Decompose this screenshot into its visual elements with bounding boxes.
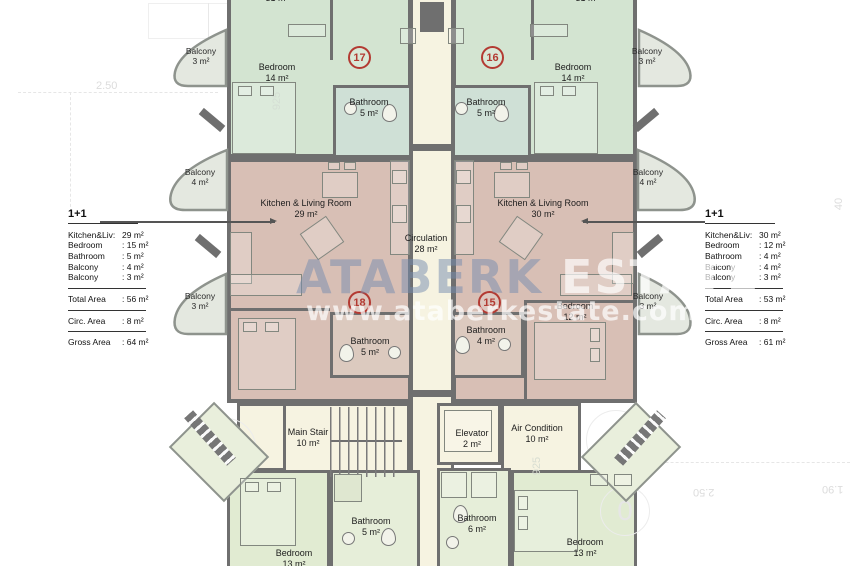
left-unit-summary: 1+1 Kitchen&Liv:29 m² Bedroom: 15 m² Bat… [68, 208, 178, 348]
kitchen-sink [392, 170, 407, 184]
summary-row: Kitchen&Liv:30 m² [705, 230, 815, 241]
leader-line-right [583, 221, 705, 223]
divider [68, 310, 146, 311]
corridor-wall-stub [410, 144, 454, 151]
pillow [267, 482, 281, 492]
stove [456, 205, 471, 223]
summary-row: Bedroom: 15 m² [68, 240, 178, 251]
balcony-label-left-3: Balcony3 m² [170, 292, 230, 312]
unit-number-17: 17 [348, 46, 371, 69]
divider [68, 331, 146, 332]
bathroom-17-room [333, 85, 412, 158]
bathroom-16-room [452, 85, 531, 158]
room-label-partial-top-left: 31 m² [252, 0, 302, 4]
summary-row: Balcony: 4 m² [68, 262, 178, 273]
divider [68, 288, 146, 289]
room-label-kitchen-left: Kitchen & Living Room29 m² [236, 198, 376, 219]
room-label-bathroom-15: Bathroom4 m² [446, 325, 526, 346]
room-label-bathroom-18: Bathroom5 m² [330, 336, 410, 357]
room-label-kitchen-right: Kitchen & Living Room30 m² [473, 198, 613, 219]
summary-circ-row: Circ. Area: 8 m² [705, 316, 815, 327]
room-label-bedroom-17: Bedroom14 m² [237, 62, 317, 83]
balcony-label-right-1: Balcony3 m² [617, 47, 677, 67]
dimension-label: 1.90 [822, 483, 843, 495]
balcony-label-left-2: Balcony4 m² [170, 168, 230, 188]
room-label-bathroom-bottom-left: Bathroom5 m² [331, 516, 411, 537]
room-label-bathroom-16: Bathroom5 m² [446, 97, 526, 118]
pillow [518, 496, 528, 510]
pillow [518, 516, 528, 530]
unit-number-16: 16 [481, 46, 504, 69]
room-label-partial-top-right: 31 m² [562, 0, 612, 4]
divider [705, 310, 783, 311]
watermark-url: www.ataberkestate.com [306, 296, 698, 327]
pillow [243, 322, 257, 332]
divider [705, 331, 783, 332]
room-label-bathroom-17: Bathroom5 m² [329, 97, 409, 118]
pillow [590, 328, 600, 342]
dresser [288, 24, 326, 37]
room-label-bedroom-bottom-left: Bedroom13 m² [254, 548, 334, 566]
dimension-label: 40 [833, 198, 845, 210]
balcony-label-right-2: Balcony4 m² [618, 168, 678, 188]
summary-total-row: Total Area: 56 m² [68, 294, 178, 305]
summary-row: Balcony: 3 m² [68, 272, 178, 283]
summary-row: Bathroom: 5 m² [68, 251, 178, 262]
chair [590, 474, 608, 486]
dimension-label: 2.50 [693, 486, 714, 498]
shaft-wall [420, 2, 444, 32]
pillow [245, 482, 259, 492]
summary-gross-row: Gross Area: 64 m² [68, 337, 178, 348]
dimension-label: 2.50 [96, 80, 117, 92]
pillow [540, 86, 554, 96]
closet [400, 28, 416, 44]
closet [448, 28, 464, 44]
summary-row: Kitchen&Liv:29 m² [68, 230, 178, 241]
balcony-label-left-1: Balcony3 m² [171, 47, 231, 67]
dimension-label: 925 [531, 457, 543, 475]
dresser [530, 24, 568, 37]
dimension-line [70, 92, 71, 212]
pillow [260, 86, 274, 96]
sofa [230, 274, 302, 296]
chair [328, 162, 340, 170]
pillow [562, 86, 576, 96]
dining-table [322, 172, 358, 198]
shower [471, 472, 497, 498]
room-label-bathroom-bottom-right: Bathroom6 m² [437, 513, 517, 534]
sink [446, 536, 459, 549]
chair [614, 474, 632, 486]
dining-table [494, 172, 530, 198]
room-label-main-stair: Main Stair10 m² [268, 427, 348, 448]
room-label-bedroom-16: Bedroom14 m² [533, 62, 613, 83]
interior-wall [330, 0, 333, 60]
stove [392, 205, 407, 223]
corridor-wall-stub [410, 390, 454, 397]
chair [516, 162, 528, 170]
right-unit-type: 1+1 [705, 208, 775, 224]
summary-gross-row: Gross Area: 61 m² [705, 337, 815, 348]
room-label-air-condition: Air Condition10 m² [497, 423, 577, 444]
room-label-bedroom-bottom-right: Bedroom13 m² [545, 537, 625, 558]
left-unit-type: 1+1 [68, 208, 138, 224]
floor-plan: 2.50 2.50 1.90 925 925 40 8 6 0 [0, 0, 850, 566]
washer [441, 472, 467, 498]
balcony-pier [199, 108, 226, 132]
balcony-pier [195, 234, 222, 258]
summary-circ-row: Circ. Area: 8 m² [68, 316, 178, 327]
shower [334, 474, 362, 502]
kitchen-sink [456, 170, 471, 184]
pillow [590, 348, 600, 362]
pillow [265, 322, 279, 332]
chair [500, 162, 512, 170]
chair [344, 162, 356, 170]
pillow [238, 86, 252, 96]
